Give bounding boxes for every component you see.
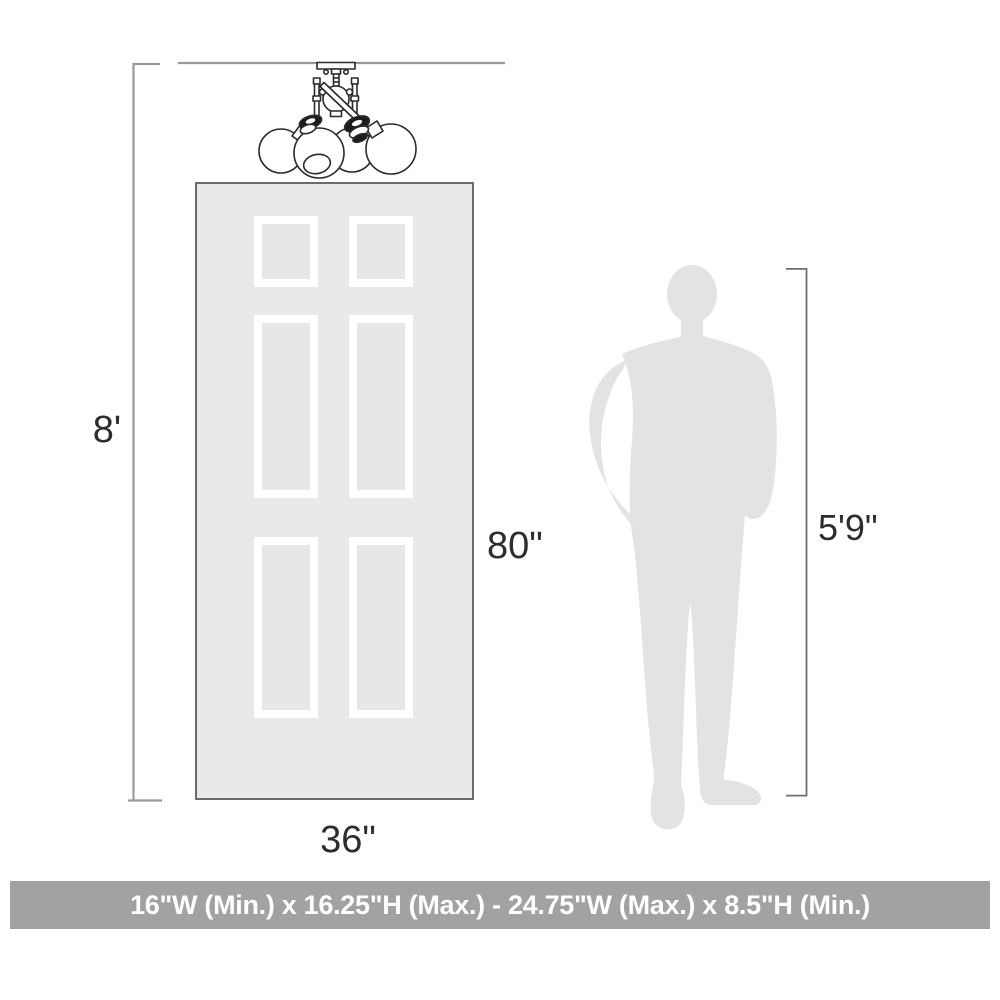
- door-width-label: 36": [318, 821, 378, 859]
- ceiling-height-dimension-line: [128, 63, 162, 801]
- canopy-plate: [317, 63, 355, 70]
- ceiling-height-label: 8': [88, 411, 126, 449]
- person-silhouette: [589, 265, 776, 829]
- person-body: [622, 335, 777, 829]
- dimensions-banner: 16"W (Min.) x 16.25"H (Max.) - 24.75"W (…: [10, 881, 990, 929]
- dimensions-banner-text: 16"W (Min.) x 16.25"H (Max.) - 24.75"W (…: [130, 890, 870, 921]
- person-height-label: 5'9": [818, 510, 878, 546]
- door-illustration: [196, 183, 473, 799]
- diagram-artwork: [0, 0, 1000, 1000]
- door-height-label: 80": [487, 527, 543, 565]
- scale-diagram: 8' 80" 36" 5'9" 16"W (Min.) x 16.25"H (M…: [0, 0, 1000, 1000]
- person-height-dimension-line: [786, 268, 807, 797]
- ceiling-light-fixture-illustration: [259, 63, 416, 179]
- door-slab: [196, 183, 473, 799]
